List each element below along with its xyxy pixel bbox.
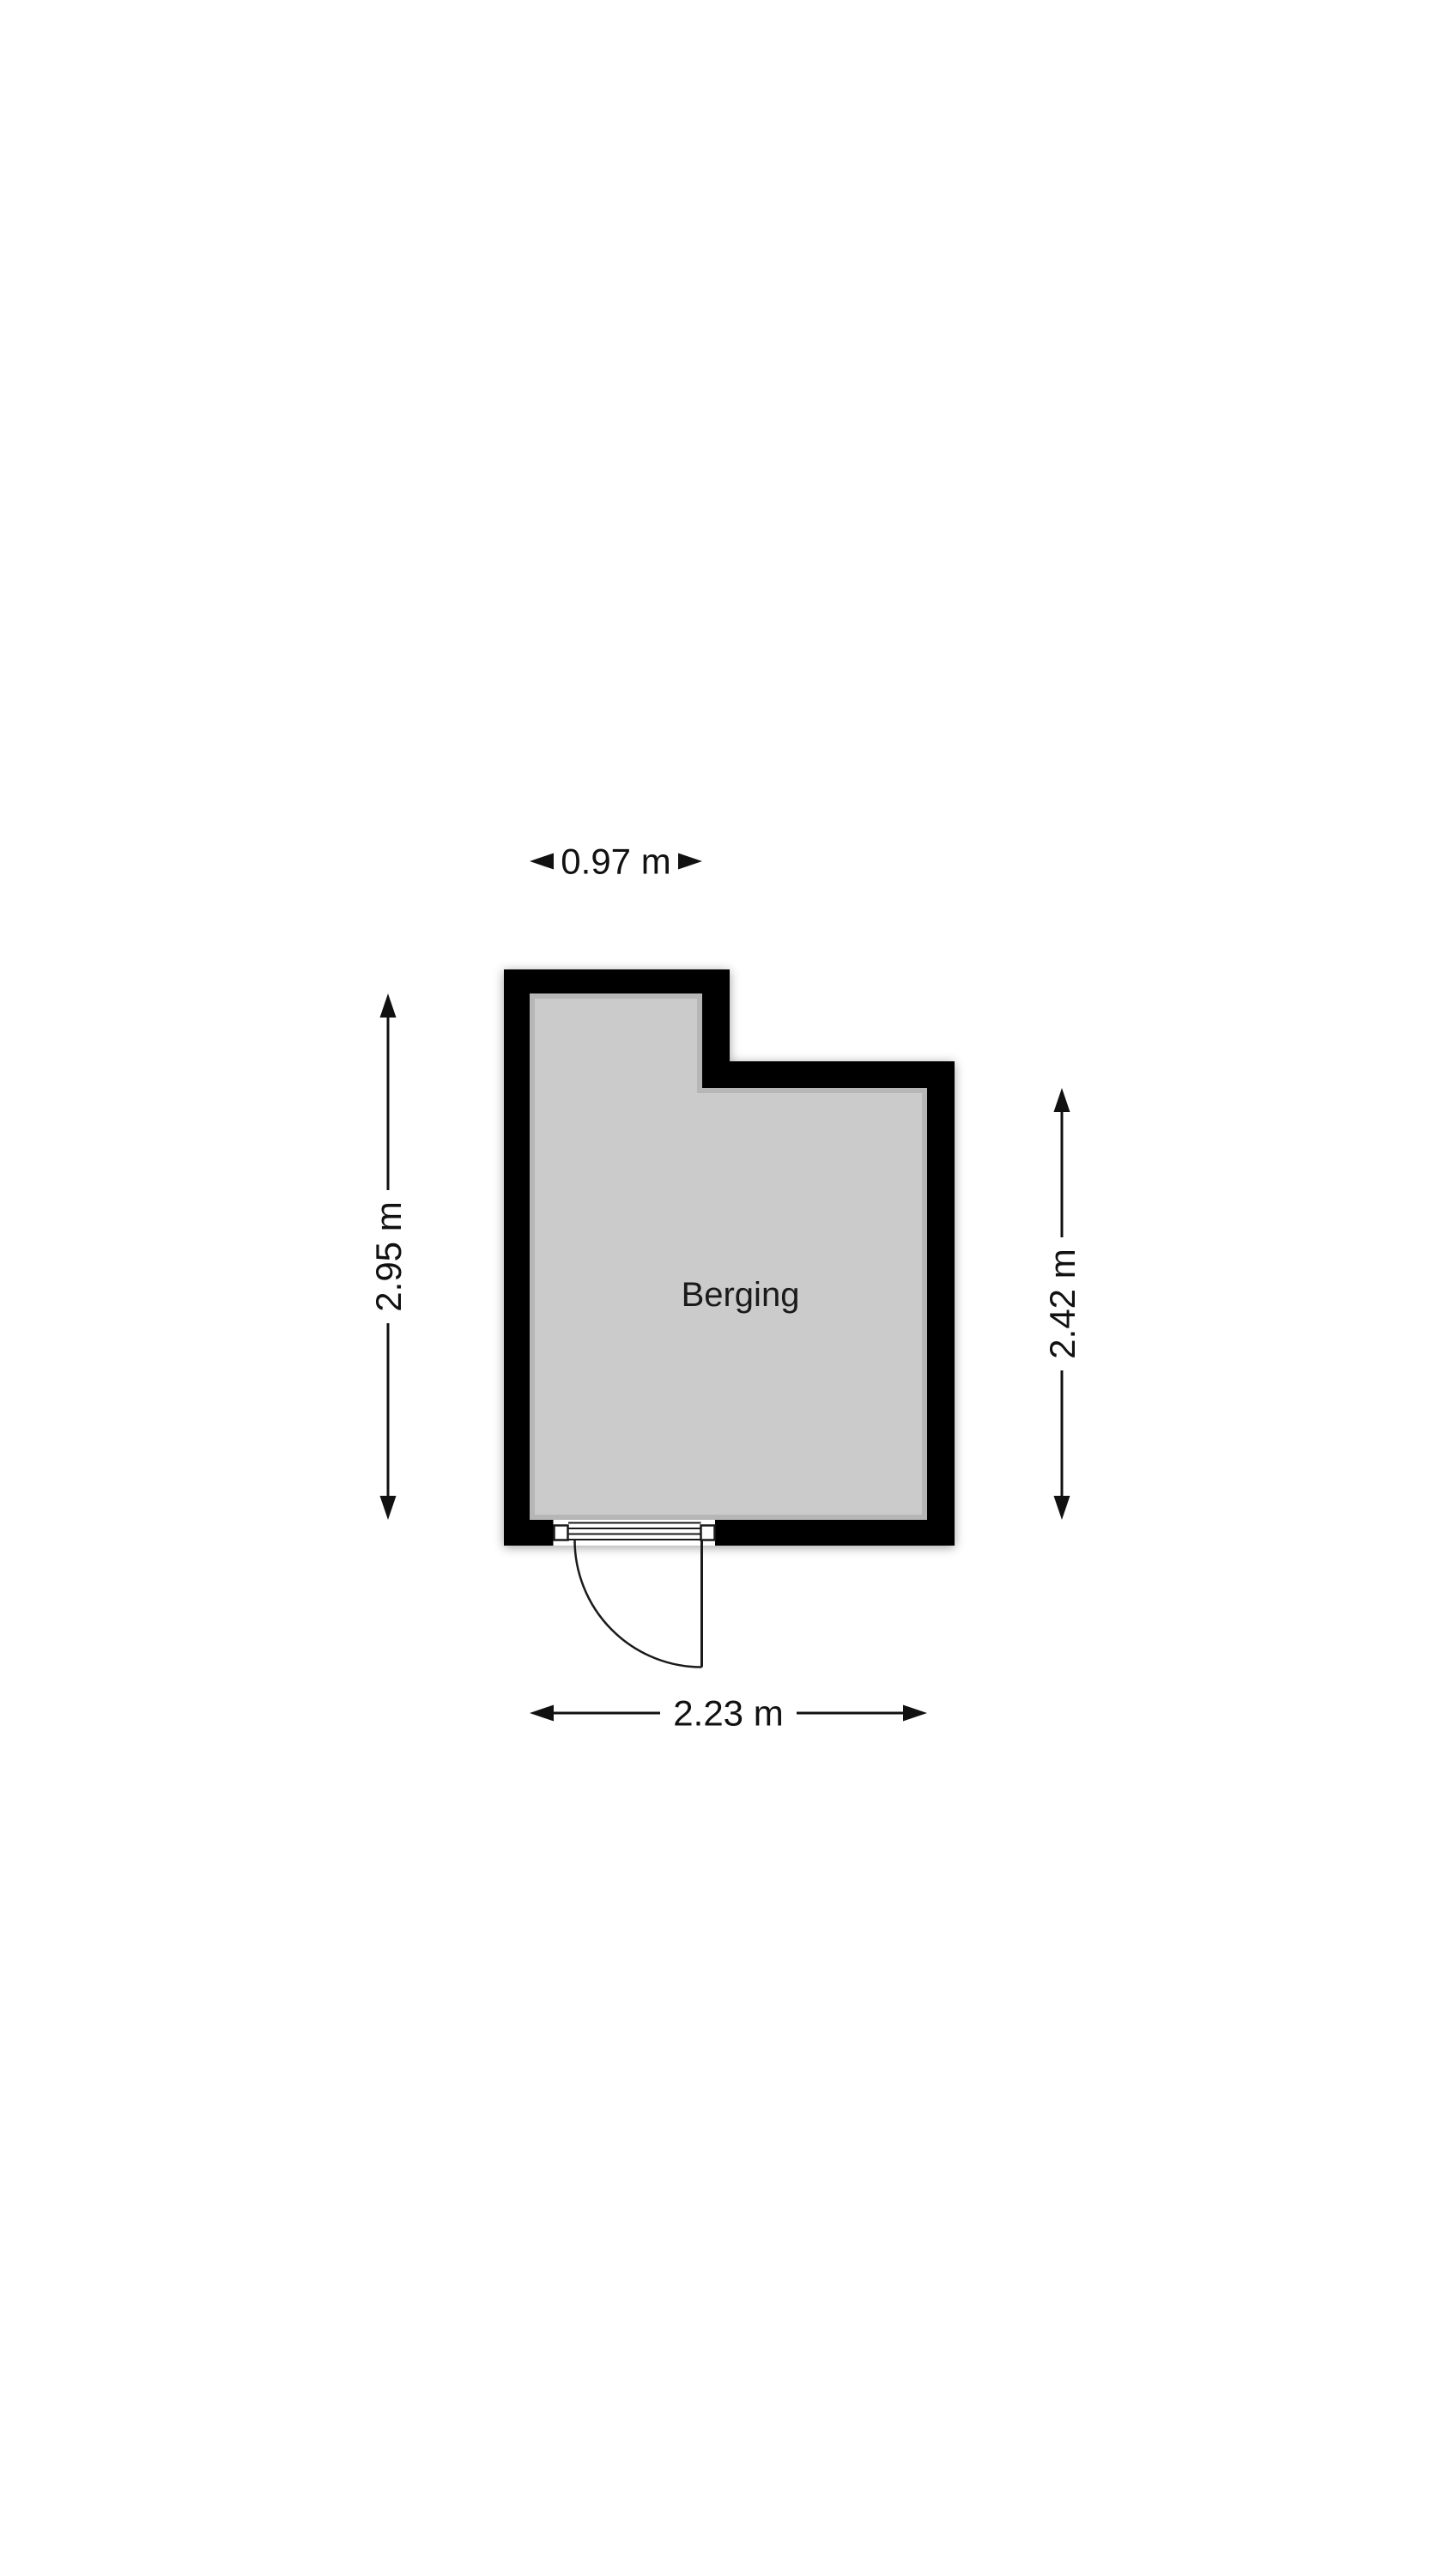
door-post-left — [555, 1526, 568, 1540]
dimension-left: 2.95 m — [368, 993, 409, 1520]
floorplan-canvas: 0.97 m 2.95 m 2.42 m 2.23 m Berging — [0, 0, 1449, 2576]
dimension-right-label: 2.42 m — [1042, 1249, 1082, 1358]
dimension-top-arrow-right — [678, 854, 702, 870]
dimension-top-label: 0.97 m — [561, 841, 670, 882]
dimension-right-arrow-bottom — [1054, 1496, 1070, 1520]
dimension-left-arrow-bottom — [380, 1496, 397, 1520]
dimension-right: 2.42 m — [1042, 1088, 1082, 1520]
dimension-top-arrow-left — [530, 854, 554, 870]
door-post-right — [701, 1526, 715, 1540]
dimension-left-arrow-top — [380, 993, 397, 1018]
dimension-bottom: 2.23 m — [530, 1693, 927, 1734]
dimension-bottom-arrow-left — [530, 1705, 554, 1722]
dimension-bottom-label: 2.23 m — [673, 1693, 783, 1734]
dimension-left-label: 2.95 m — [368, 1201, 409, 1311]
dimension-bottom-arrow-right — [903, 1705, 927, 1722]
dimension-top: 0.97 m — [530, 841, 702, 882]
room-name-label: Berging — [682, 1276, 800, 1314]
dimension-right-arrow-top — [1054, 1088, 1070, 1112]
door-swing-arc — [575, 1540, 702, 1668]
